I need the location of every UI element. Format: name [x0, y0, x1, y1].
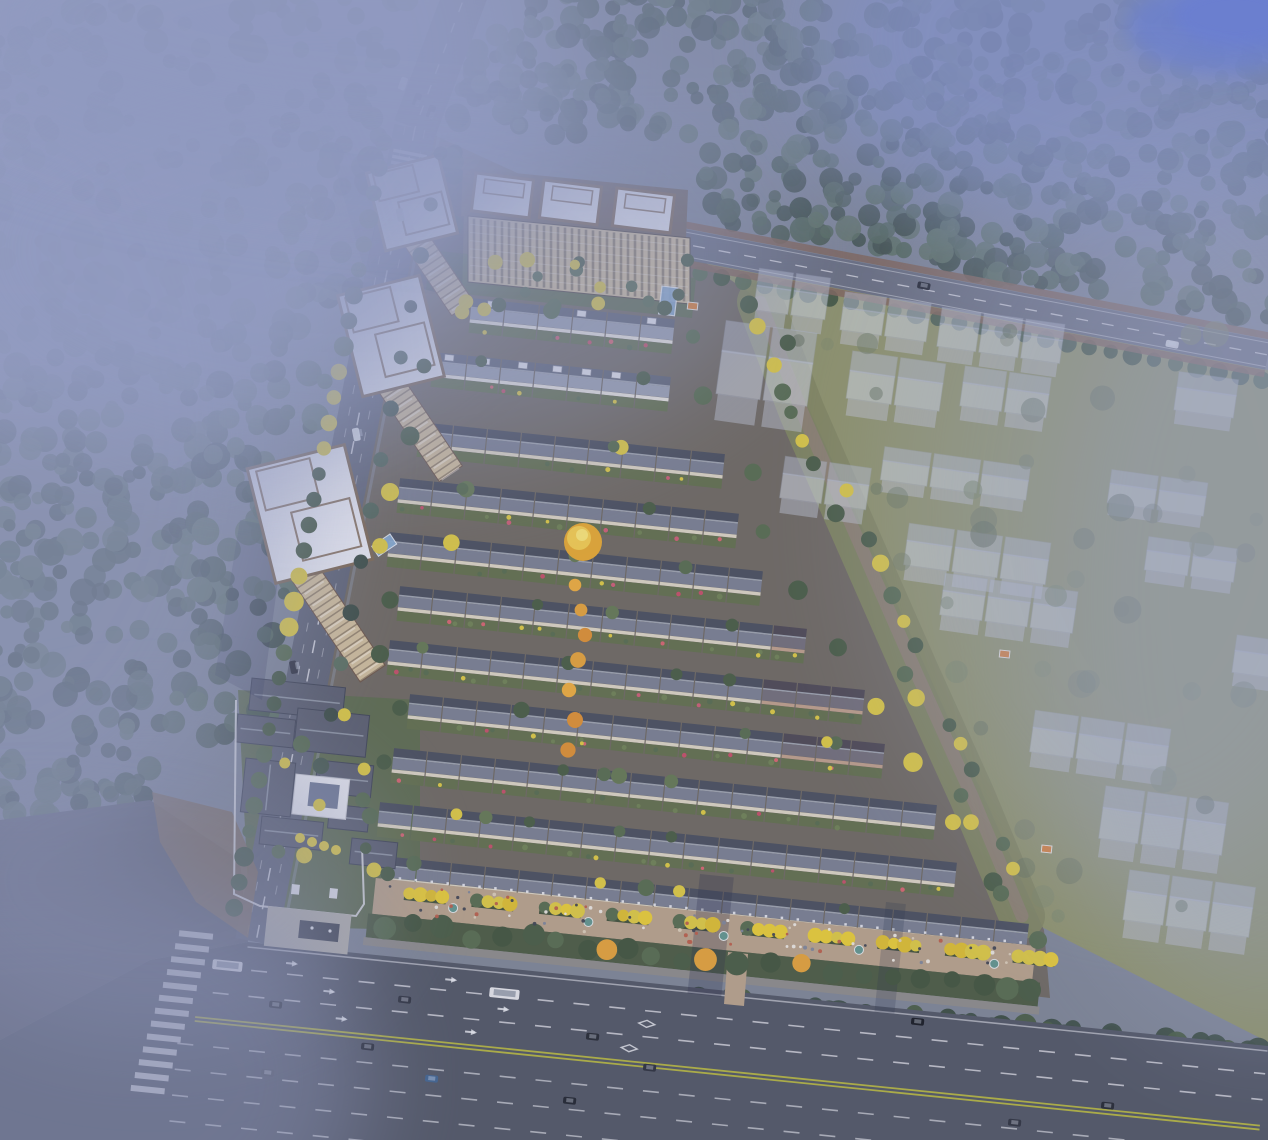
render-canvas [0, 0, 1268, 1140]
fog-layer [0, 0, 1268, 1140]
aerial-masterplan-render [0, 0, 1268, 1140]
